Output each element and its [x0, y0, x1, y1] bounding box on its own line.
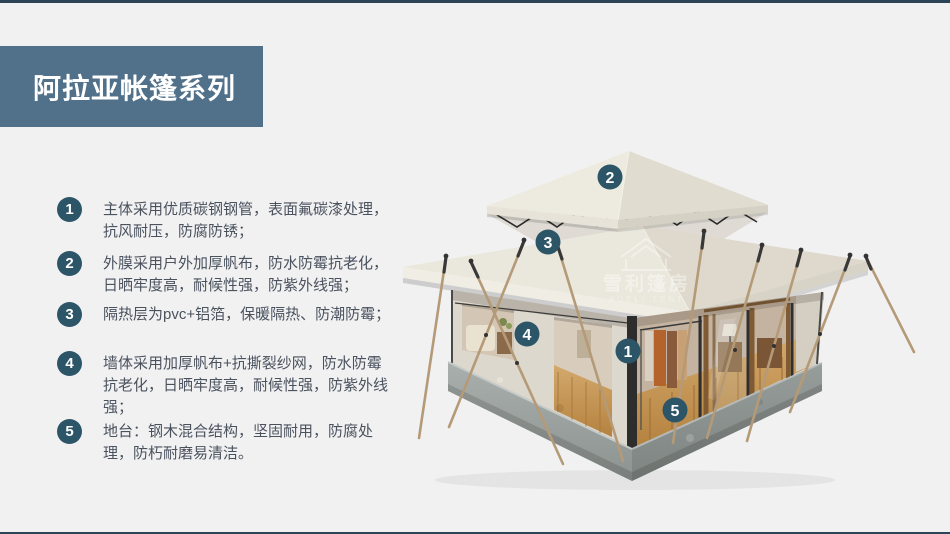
callout-marker-1: 1 [616, 339, 641, 364]
number-badge-1: 1 [57, 197, 82, 222]
feature-item-4: 4 墙体采用加厚帆布+抗撕裂纱网，防水防霉抗老化，日晒牢度高，耐候性强，防紫外线… [57, 351, 395, 419]
number-badge-5: 5 [57, 419, 82, 444]
watermark-cn: 雪利篷房 [603, 272, 691, 295]
feature-text-5: 地台：钢木混合结构，坚固耐用，防腐处理，防朽耐磨易清洁。 [103, 421, 395, 465]
callout-marker-5: 5 [663, 398, 688, 423]
number-badge-3: 3 [57, 302, 82, 327]
page-title: 阿拉亚帐篷系列 [0, 46, 263, 127]
feature-item-1: 1 主体采用优质碳钢钢管，表面氟碳漆处理，抗风耐压，防腐防锈； [57, 197, 395, 243]
svg-text:2: 2 [606, 170, 615, 187]
feature-item-2: 2 外膜采用户外加厚帆布，防水防霉抗老化，日晒牢度高，耐候性强，防紫外线强； [57, 251, 395, 297]
feature-item-5: 5 地台：钢木混合结构，坚固耐用，防腐处理，防朽耐磨易清洁。 [57, 419, 395, 465]
watermark-en: XUELI TENT [609, 295, 685, 304]
feature-text-4: 墙体采用加厚帆布+抗撕裂纱网，防水防霉抗老化，日晒牢度高，耐候性强，防紫外线强； [103, 353, 395, 419]
number-badge-2: 2 [57, 251, 82, 276]
callout-marker-4: 4 [515, 322, 540, 347]
svg-text:5: 5 [671, 403, 680, 420]
page-title-label: 阿拉亚帐篷系列 [33, 67, 236, 107]
callout-marker-2: 2 [598, 165, 623, 190]
slide-root: { "page": { "background": "#f1f1f2", "ac… [0, 0, 950, 534]
number-badge-4: 4 [57, 351, 82, 376]
callout-marker-3: 3 [536, 230, 561, 255]
svg-text:4: 4 [523, 327, 532, 344]
feature-text-2: 外膜采用户外加厚帆布，防水防霉抗老化，日晒牢度高，耐候性强，防紫外线强； [103, 253, 395, 297]
corner-post [627, 316, 637, 453]
svg-text:1: 1 [624, 344, 633, 361]
feature-item-3: 3 隔热层为pvc+铝箔，保暖隔热、防潮防霉； [57, 302, 395, 327]
feature-text-1: 主体采用优质碳钢钢管，表面氟碳漆处理，抗风耐压，防腐防锈； [103, 199, 395, 243]
top-accent-bar [0, 0, 950, 3]
svg-text:3: 3 [544, 235, 553, 252]
tent-illustration: 雪利篷房 XUELI TENT [393, 138, 950, 502]
feature-text-3: 隔热层为pvc+铝箔，保暖隔热、防潮防霉； [103, 304, 395, 326]
